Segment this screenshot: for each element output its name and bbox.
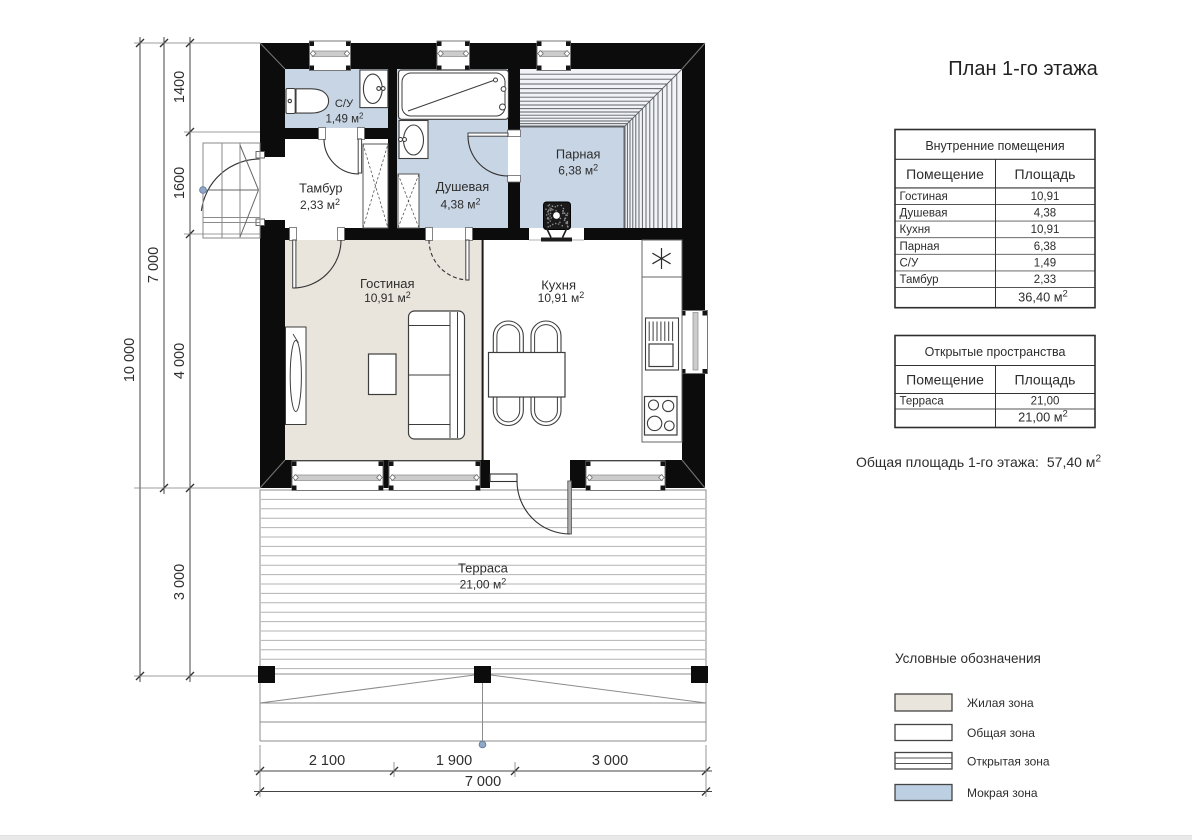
svg-text:Душевая: Душевая [900, 208, 948, 220]
svg-text:2,33 м2: 2,33 м2 [300, 197, 340, 212]
svg-text:Терраса: Терраса [458, 561, 509, 576]
svg-text:10,91 м2: 10,91 м2 [538, 290, 585, 305]
svg-text:С/У: С/У [900, 257, 920, 269]
svg-text:3 000: 3 000 [592, 753, 628, 769]
svg-text:4,38 м2: 4,38 м2 [441, 197, 481, 212]
svg-text:Открытая зона: Открытая зона [967, 755, 1050, 769]
svg-text:Мокрая зона: Мокрая зона [967, 786, 1038, 800]
svg-text:6,38 м2: 6,38 м2 [558, 163, 598, 178]
svg-text:Душевая: Душевая [436, 179, 490, 194]
svg-text:10 000: 10 000 [122, 338, 138, 382]
svg-text:21,00 м2: 21,00 м2 [460, 577, 507, 592]
svg-text:10,91: 10,91 [1031, 224, 1060, 236]
svg-text:Тамбур: Тамбур [900, 274, 939, 286]
svg-text:Парная: Парная [900, 241, 940, 253]
svg-text:7 000: 7 000 [465, 774, 501, 790]
svg-text:План 1-го этажа: План 1-го этажа [948, 58, 1098, 80]
svg-text:Терраса: Терраса [900, 396, 945, 408]
svg-text:21,00 м2: 21,00 м2 [1018, 409, 1068, 425]
svg-text:1600: 1600 [172, 167, 188, 199]
svg-text:Площадь: Площадь [1015, 166, 1076, 182]
svg-text:4 000: 4 000 [172, 343, 188, 379]
svg-text:3 000: 3 000 [172, 564, 188, 600]
svg-text:С/У: С/У [335, 98, 354, 110]
svg-text:Общая зона: Общая зона [967, 726, 1035, 740]
svg-text:7 000: 7 000 [146, 247, 162, 283]
svg-text:6,38: 6,38 [1034, 241, 1056, 253]
svg-text:2,33: 2,33 [1034, 274, 1056, 286]
svg-text:Условные обозначения: Условные обозначения [895, 651, 1041, 666]
svg-text:4,38: 4,38 [1034, 208, 1056, 220]
svg-text:Парная: Парная [556, 147, 601, 162]
svg-text:21,00: 21,00 [1031, 396, 1060, 408]
svg-text:Помещение: Помещение [906, 372, 984, 388]
svg-text:Общая площадь 1-го этажа:57,40: Общая площадь 1-го этажа:57,40 м2 [856, 454, 1101, 471]
svg-text:1400: 1400 [172, 71, 188, 103]
svg-text:10,91 м2: 10,91 м2 [364, 290, 411, 305]
svg-text:36,40 м2: 36,40 м2 [1018, 289, 1068, 305]
svg-text:Гостиная: Гостиная [900, 191, 948, 203]
svg-text:Гостиная: Гостиная [360, 276, 415, 291]
svg-text:Помещение: Помещение [906, 166, 984, 182]
svg-text:Жилая зона: Жилая зона [967, 696, 1034, 710]
svg-text:1 900: 1 900 [436, 753, 472, 769]
svg-text:10,91: 10,91 [1031, 191, 1060, 203]
svg-text:2 100: 2 100 [309, 753, 345, 769]
svg-text:1,49: 1,49 [1034, 257, 1056, 269]
svg-text:Тамбур: Тамбур [299, 181, 342, 196]
svg-text:Внутренние помещения: Внутренние помещения [925, 139, 1064, 153]
svg-text:Кухня: Кухня [900, 224, 931, 236]
svg-text:1,49 м2: 1,49 м2 [326, 112, 364, 126]
svg-text:Площадь: Площадь [1015, 372, 1076, 388]
svg-text:Открытые пространства: Открытые пространства [925, 345, 1066, 359]
